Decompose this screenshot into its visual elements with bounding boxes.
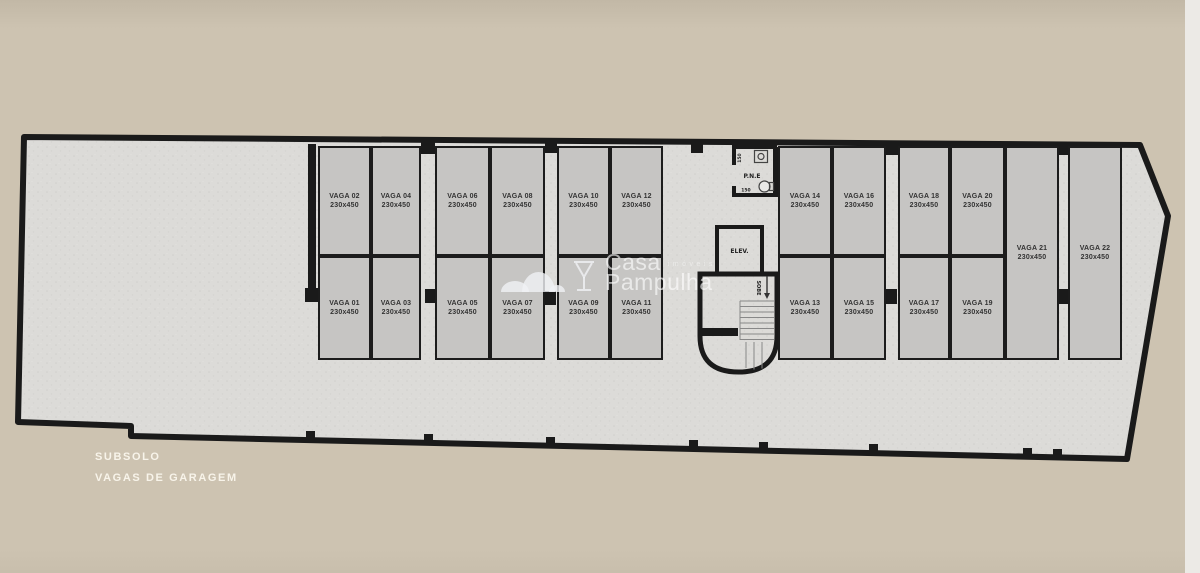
parking-spot: VAGA 17230x450 [898,256,950,360]
spot-size: 230x450 [963,308,992,317]
parking-spot: VAGA 19230x450 [950,256,1005,360]
spot-size: 230x450 [622,201,651,210]
spot-label: VAGA 03 [381,299,412,308]
spot-label: VAGA 20 [962,192,993,201]
spot-size: 230x450 [910,308,939,317]
spot-label: VAGA 02 [329,192,360,201]
parking-spot: VAGA 21230x450 [1005,146,1059,360]
parking-spot: VAGA 16230x450 [832,146,886,256]
spot-size: 230x450 [382,308,411,317]
parking-spot: VAGA 22230x450 [1068,146,1122,360]
spot-label: VAGA 19 [962,299,993,308]
spot-label: VAGA 15 [844,299,875,308]
spot-label: VAGA 10 [568,192,599,201]
spot-size: 230x450 [910,201,939,210]
spot-label: VAGA 22 [1080,244,1111,253]
spot-size: 230x450 [1081,253,1110,262]
spot-label: VAGA 08 [502,192,533,201]
caption-description: VAGAS DE GARAGEM [95,472,238,484]
spot-label: VAGA 14 [790,192,821,201]
parking-spot: VAGA 08230x450 [490,146,545,256]
spot-label: VAGA 12 [621,192,652,201]
parking-spot: VAGA 03230x450 [371,256,421,360]
parking-spot: VAGA 12230x450 [610,146,663,256]
parking-spot: VAGA 01230x450 [318,256,371,360]
spot-size: 230x450 [448,201,477,210]
spot-size: 230x450 [503,201,532,210]
floor-plan-page: P.N.E 150 150 ELEV. [0,0,1200,573]
spot-size: 230x450 [791,308,820,317]
spot-label: VAGA 05 [447,299,478,308]
parking-spot: VAGA 04230x450 [371,146,421,256]
spot-size: 230x450 [622,308,651,317]
parking-spot: VAGA 14230x450 [778,146,832,256]
parking-spot: VAGA 06230x450 [435,146,490,256]
spot-size: 230x450 [569,201,598,210]
plan-caption: SUBSOLO VAGAS DE GARAGEM [95,451,238,493]
parking-spot: VAGA 07230x450 [490,256,545,360]
parking-spot: VAGA 05230x450 [435,256,490,360]
spot-size: 230x450 [503,308,532,317]
spot-label: VAGA 18 [909,192,940,201]
spot-size: 230x450 [382,201,411,210]
caption-floor-level: SUBSOLO [95,451,238,463]
spot-label: VAGA 06 [447,192,478,201]
parking-spot: VAGA 10230x450 [557,146,610,256]
spot-size: 230x450 [791,201,820,210]
spot-label: VAGA 13 [790,299,821,308]
spot-size: 230x450 [963,201,992,210]
parking-spot: VAGA 09230x450 [557,256,610,360]
spot-label: VAGA 21 [1017,244,1048,253]
spot-size: 230x450 [330,201,359,210]
spot-label: VAGA 17 [909,299,940,308]
spot-size: 230x450 [845,308,874,317]
spot-label: VAGA 16 [844,192,875,201]
spot-label: VAGA 11 [621,299,651,308]
spot-label: VAGA 09 [568,299,599,308]
parking-spot: VAGA 15230x450 [832,256,886,360]
spot-label: VAGA 04 [381,192,412,201]
spot-size: 230x450 [448,308,477,317]
parking-spot: VAGA 11230x450 [610,256,663,360]
spot-size: 230x450 [845,201,874,210]
parking-spot: VAGA 20230x450 [950,146,1005,256]
spot-label: VAGA 01 [329,299,360,308]
parking-spot: VAGA 02230x450 [318,146,371,256]
spot-size: 230x450 [330,308,359,317]
spot-size: 230x450 [569,308,598,317]
parking-spot: VAGA 13230x450 [778,256,832,360]
parking-spot: VAGA 18230x450 [898,146,950,256]
spot-label: VAGA 07 [502,299,533,308]
spot-size: 230x450 [1018,253,1047,262]
